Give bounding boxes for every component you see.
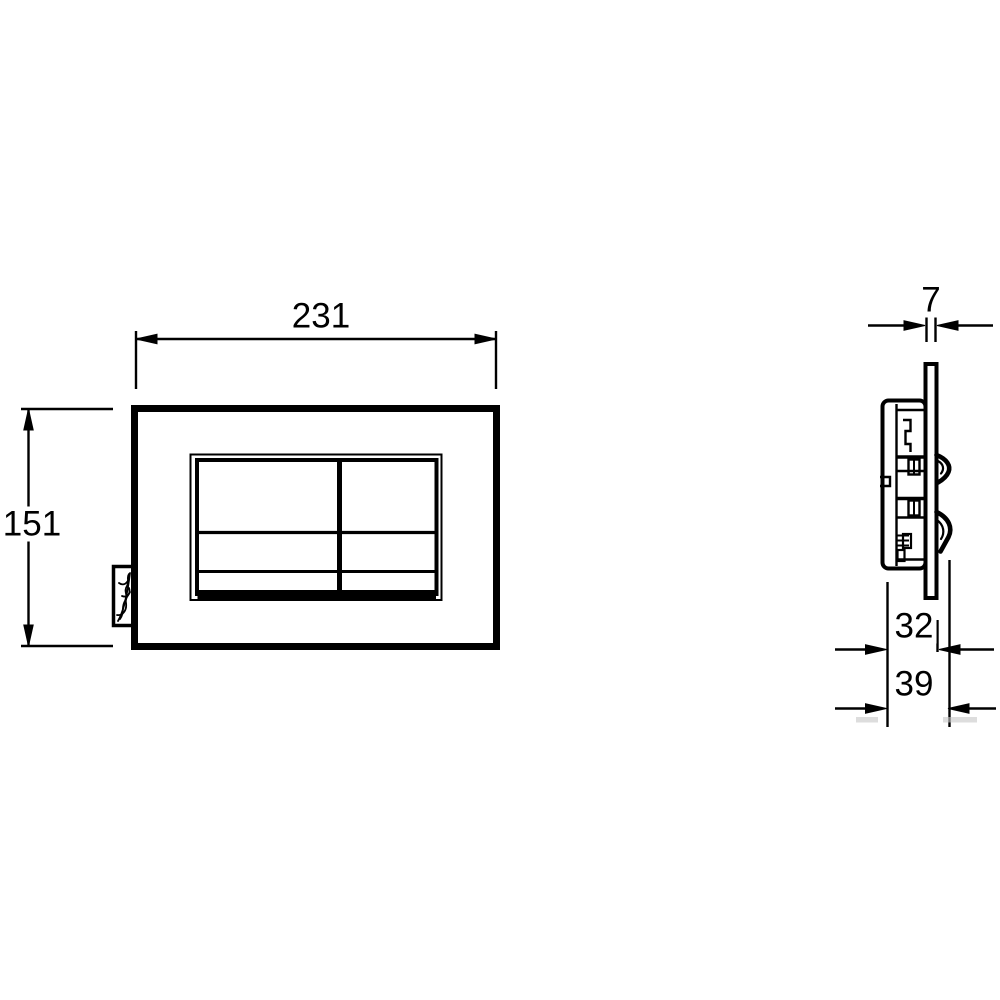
dim-depth32-label: 32 <box>892 609 937 644</box>
dim-depth39-arrow-left <box>866 704 887 713</box>
smudge-right <box>943 717 977 723</box>
dim-height-arrow-top <box>24 409 33 430</box>
button-panel-bottom-shadow <box>198 590 437 600</box>
dim-thickness-arrow-left <box>904 321 925 330</box>
spring-clips <box>937 455 951 552</box>
watermark-smudges <box>856 717 977 723</box>
dim-width-label: 231 <box>289 299 353 334</box>
mounting-frame-section <box>880 401 926 569</box>
technical-drawing-canvas: 231 151 7 32 39 <box>0 0 1000 1000</box>
dim-depth39-label: 39 <box>892 667 937 702</box>
side-view-plate <box>926 364 937 598</box>
dim-depth39-arrow-right <box>948 704 969 713</box>
dim-height-arrow-bottom <box>24 625 33 646</box>
dim-width-arrow-right <box>475 334 496 343</box>
spring-clip-top-inner <box>938 461 943 474</box>
dim-depth32-arrow-left <box>866 645 887 654</box>
smudge-left <box>856 717 878 723</box>
drawing-linework <box>0 0 1000 1000</box>
dim-thickness-label: 7 <box>918 283 943 318</box>
dim-width-arrow-left <box>136 334 157 343</box>
front-view <box>21 331 497 647</box>
dim-thickness-arrow-right <box>937 321 958 330</box>
dim-width <box>136 331 496 389</box>
dim-height-label: 151 <box>0 507 64 542</box>
